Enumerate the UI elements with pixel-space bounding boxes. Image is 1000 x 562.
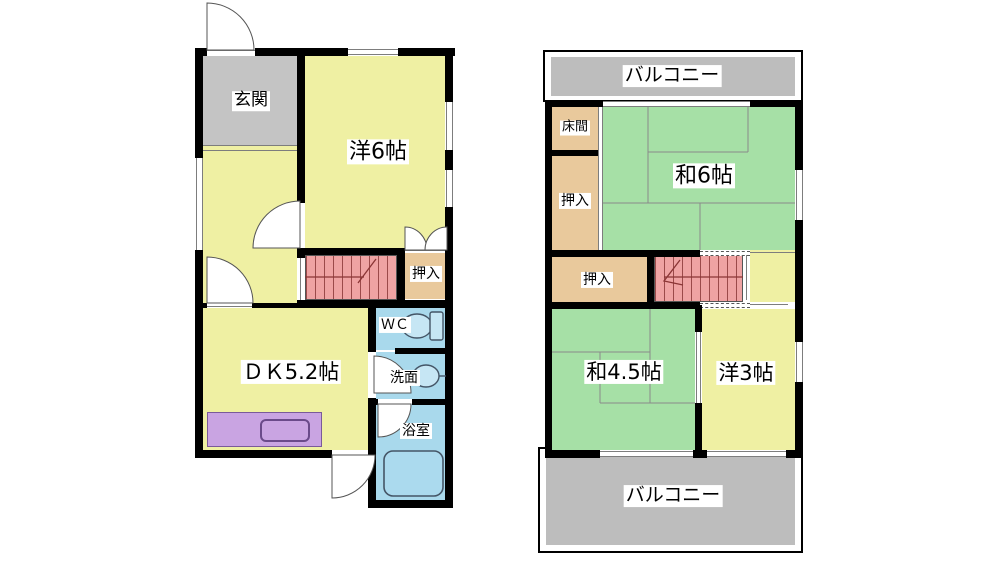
wall	[545, 100, 552, 458]
wall	[647, 250, 654, 307]
wall	[695, 305, 702, 332]
label-washroom: 洗面	[388, 370, 420, 386]
wall	[195, 250, 203, 458]
window	[446, 170, 453, 207]
wall	[445, 48, 453, 102]
wall	[368, 500, 453, 508]
wall	[297, 248, 405, 255]
wall	[412, 399, 453, 405]
door-threshold	[207, 50, 255, 51]
label-genkan: 玄関	[232, 91, 270, 111]
wall	[368, 398, 376, 508]
wall	[545, 302, 700, 309]
room-bathroom	[376, 404, 445, 500]
stairs-floor1	[305, 255, 397, 300]
wall	[695, 403, 702, 457]
label-closet-upper: 押入	[559, 193, 591, 209]
wall	[195, 48, 203, 158]
label-western3: 洋3帖	[716, 361, 775, 385]
label-bath: 浴室	[400, 423, 432, 439]
closet-door-line	[405, 250, 445, 251]
wall	[445, 207, 453, 508]
stair-edge-line	[746, 255, 747, 300]
landing-line	[750, 252, 795, 253]
wall	[552, 150, 598, 156]
door-threshold	[207, 306, 252, 307]
window	[603, 101, 750, 107]
wall	[397, 253, 405, 300]
wall	[693, 450, 707, 458]
room-hallway	[203, 146, 297, 303]
label-dk: ＤＫ5.2帖	[241, 360, 341, 384]
wall	[795, 100, 803, 170]
wall	[368, 305, 376, 352]
wall	[545, 100, 603, 107]
landing-line	[750, 304, 788, 305]
window	[796, 170, 803, 220]
wall	[445, 150, 453, 170]
label-wc: ＷＣ	[379, 317, 411, 333]
window	[446, 102, 453, 150]
label-balcony-top: バルコニー	[623, 65, 722, 87]
wall	[252, 303, 303, 308]
kitchen-counter	[207, 412, 322, 447]
linework-overlay	[0, 0, 1000, 562]
wall	[545, 250, 700, 257]
window	[796, 342, 803, 382]
wall	[795, 220, 803, 342]
label-closet-mid: 押入	[581, 272, 613, 288]
label-tokonoma: 床間	[560, 121, 590, 136]
fusuma-partition	[598, 107, 603, 250]
stair-landing	[750, 250, 795, 302]
stair-entry-line	[300, 258, 301, 300]
window	[196, 158, 203, 250]
wall	[795, 382, 803, 458]
genkan-step-line	[203, 150, 298, 151]
wall	[297, 48, 305, 203]
genkan-step-line	[203, 145, 298, 146]
kitchen-sink-icon	[260, 419, 310, 442]
wall	[786, 450, 803, 458]
wall	[195, 450, 332, 458]
wall	[395, 348, 453, 354]
wall	[195, 303, 207, 308]
label-japanese45: 和4.5帖	[584, 360, 663, 384]
floor-plan-canvas: 玄関 洋6帖 押入 ＤＫ5.2帖 ＷＣ 洗面 浴室 バルコニー 床間 押入 和6…	[0, 0, 1000, 562]
wall	[368, 399, 378, 405]
sliding-partition	[696, 332, 701, 403]
label-japanese6: 和6帖	[673, 163, 735, 188]
label-western6: 洋6帖	[347, 139, 409, 164]
wall	[545, 450, 600, 458]
sliding-door-balcony	[707, 451, 786, 457]
stairs-floor2	[654, 255, 743, 302]
open-edge	[700, 251, 750, 256]
door-swing-arc	[207, 3, 254, 50]
sliding-door-balcony	[600, 451, 693, 457]
window	[348, 49, 398, 55]
open-edge	[700, 303, 750, 308]
label-closet-floor1: 押入	[410, 266, 442, 282]
label-balcony-bottom: バルコニー	[624, 485, 723, 507]
